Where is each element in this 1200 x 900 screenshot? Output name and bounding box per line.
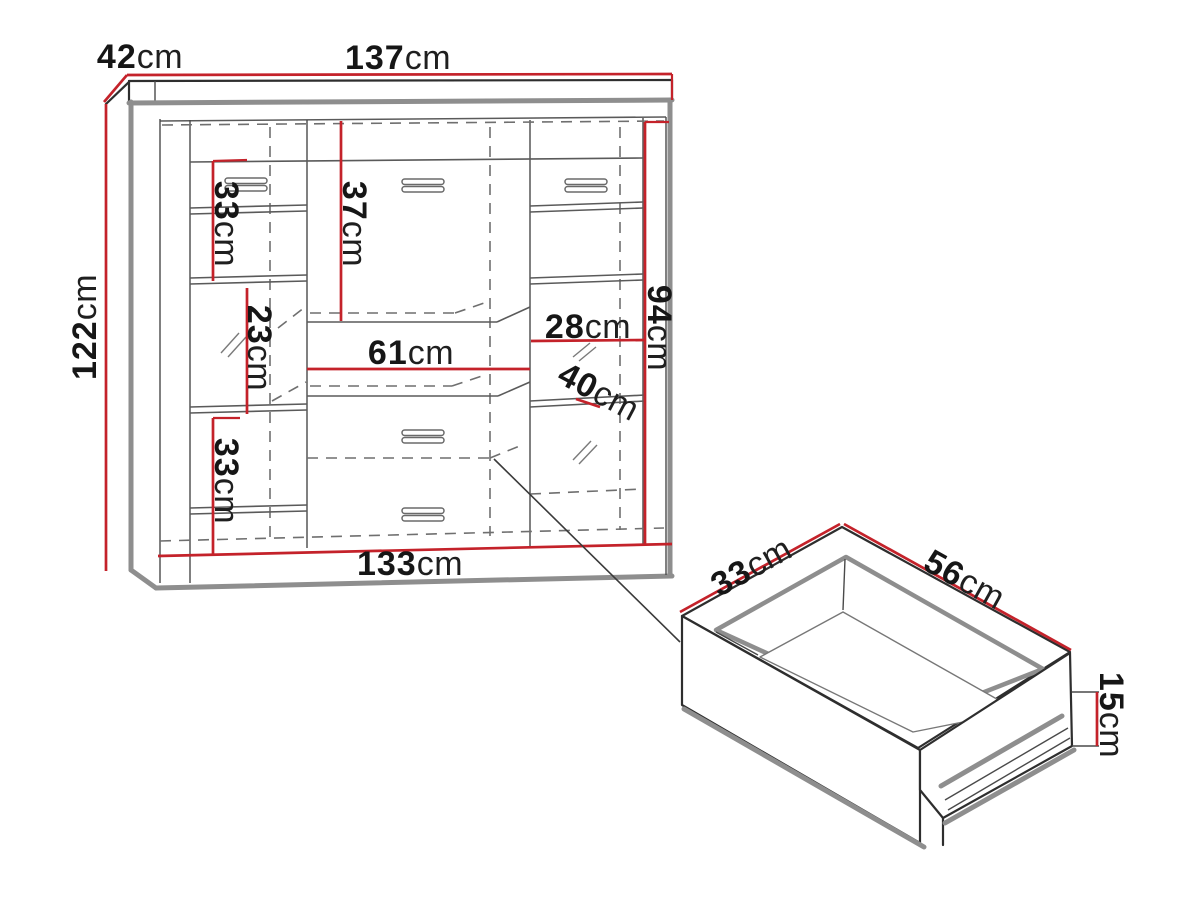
dim-40-label: 40cm <box>552 355 646 429</box>
middle-drawer-handle-2 <box>402 508 444 521</box>
dim-42-label: 42cm <box>97 38 183 76</box>
middle-drawer-handle-1 <box>402 430 444 443</box>
dim-94-label: 94cm <box>640 285 678 371</box>
drawer-detail-view: 33cm 56cm 15cm <box>680 524 1130 847</box>
cabinet-front-view: 42cm 137cm 122cm 33cm 37cm 23cm 33cm 61c… <box>66 38 678 588</box>
dim-23-label: 23cm <box>240 305 278 391</box>
dim-37-label: 37cm <box>335 181 373 267</box>
dim-137-label: 137cm <box>345 39 451 77</box>
diagram-canvas: 42cm 137cm 122cm 33cm 37cm 23cm 33cm 61c… <box>0 0 1200 900</box>
furniture-dimension-diagram: 42cm 137cm 122cm 33cm 37cm 23cm 33cm 61c… <box>0 0 1200 900</box>
right-door-handle <box>565 179 607 192</box>
detail-pointer-line <box>494 459 680 642</box>
dim-133-label: 133cm <box>357 545 463 583</box>
dim-33-top-label: 33cm <box>207 181 245 267</box>
dim-28-label: 28cm <box>545 308 631 346</box>
dim-137-line <box>127 74 672 100</box>
dim-33-bottom-label: 33cm <box>207 438 245 524</box>
dim-15-drawer-label: 15cm <box>1092 672 1130 758</box>
middle-door-handle <box>402 179 444 192</box>
dim-122-label: 122cm <box>66 274 104 380</box>
dim-61-label: 61cm <box>368 334 454 372</box>
right-door-glass-mark-lower <box>573 441 597 464</box>
cabinet-top-panel <box>106 80 672 104</box>
